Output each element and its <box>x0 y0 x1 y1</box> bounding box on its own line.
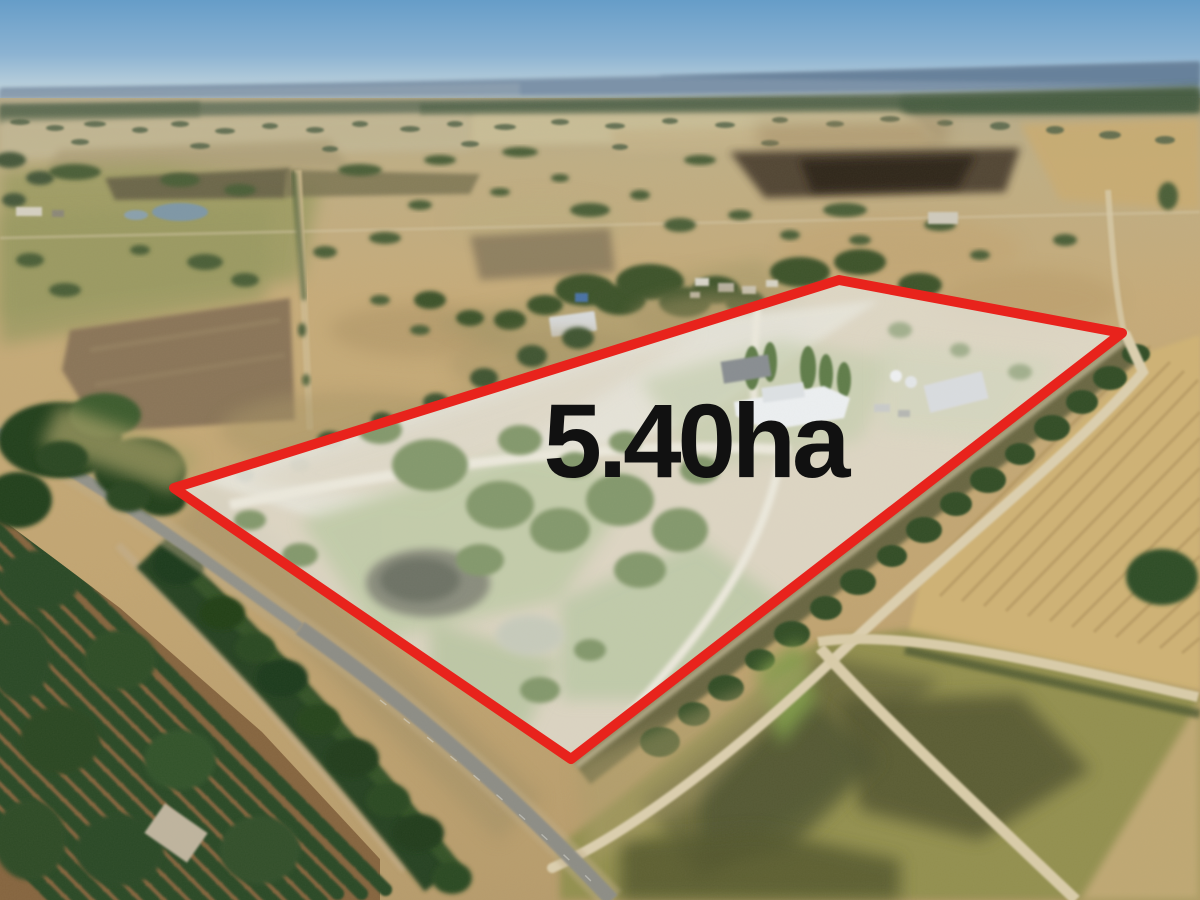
svg-text:5.40ha: 5.40ha <box>544 383 852 500</box>
